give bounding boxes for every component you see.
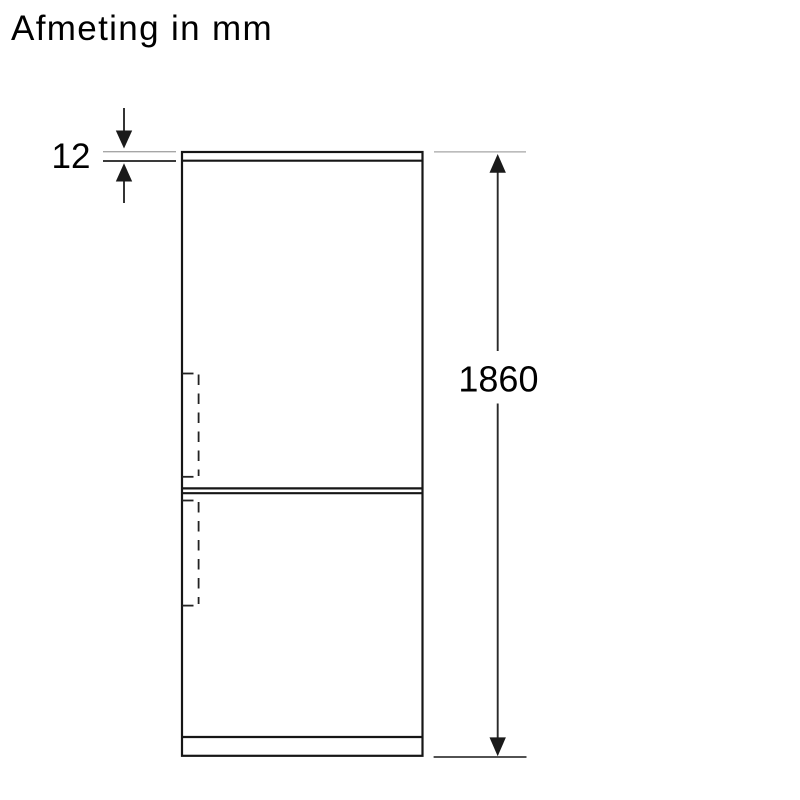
svg-text:Afmeting in mm: Afmeting in mm (11, 9, 273, 48)
svg-text:1860: 1860 (458, 359, 538, 400)
svg-text:12: 12 (52, 137, 91, 176)
